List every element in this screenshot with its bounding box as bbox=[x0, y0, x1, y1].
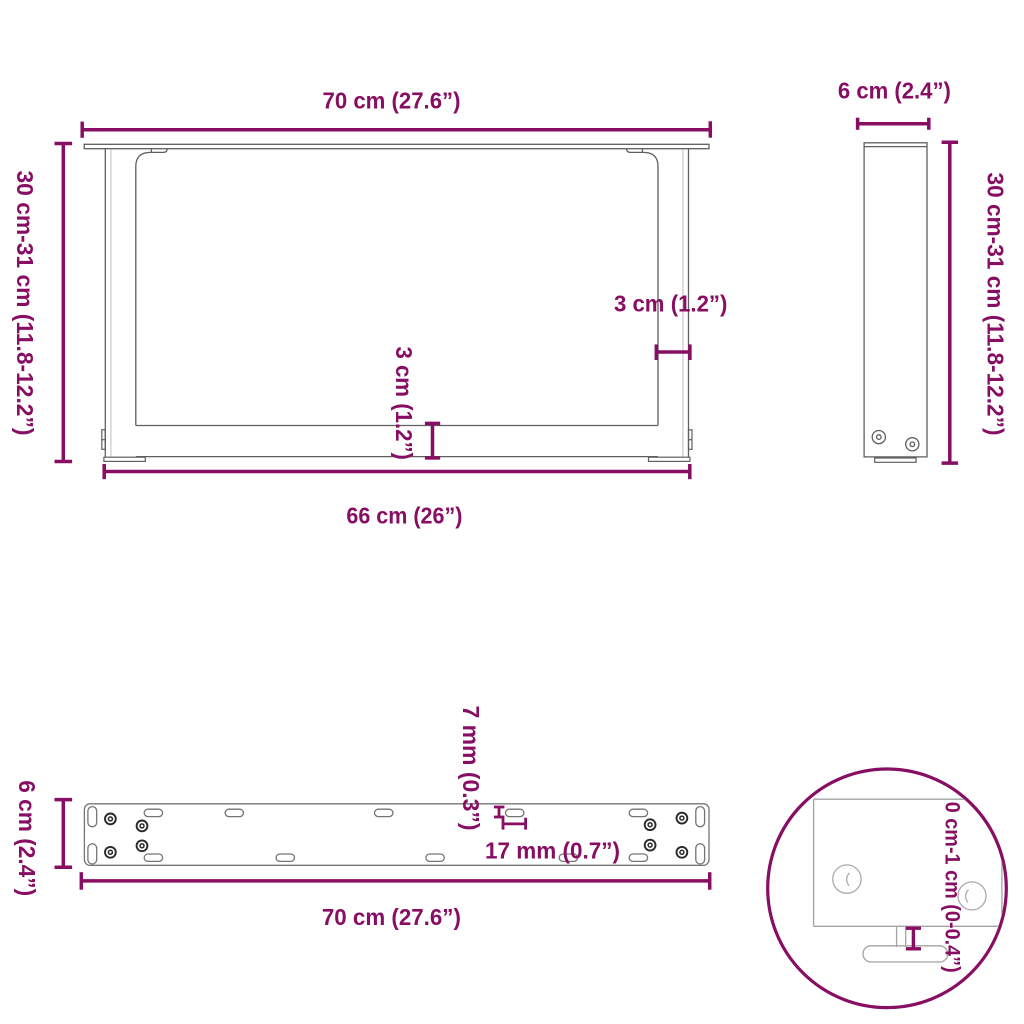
svg-text:3 cm (1.2”): 3 cm (1.2”) bbox=[391, 346, 417, 460]
svg-text:30 cm-31 cm (11.8-12.2”): 30 cm-31 cm (11.8-12.2”) bbox=[12, 171, 38, 436]
svg-text:6 cm (2.4”): 6 cm (2.4”) bbox=[838, 78, 951, 104]
svg-text:30 cm-31 cm (11.8-12.2”): 30 cm-31 cm (11.8-12.2”) bbox=[982, 173, 1008, 436]
svg-text:70 cm (27.6”): 70 cm (27.6”) bbox=[322, 904, 461, 930]
svg-text:6 cm (2.4”): 6 cm (2.4”) bbox=[14, 780, 40, 896]
svg-text:0 cm-1 cm (0-0.4”): 0 cm-1 cm (0-0.4”) bbox=[941, 802, 965, 973]
svg-text:70 cm (27.6”): 70 cm (27.6”) bbox=[323, 87, 461, 113]
svg-text:66 cm (26”): 66 cm (26”) bbox=[346, 503, 462, 529]
svg-text:7 mm (0.3”): 7 mm (0.3”) bbox=[458, 706, 484, 831]
svg-text:17 mm (0.7”): 17 mm (0.7”) bbox=[485, 838, 620, 864]
svg-text:3 cm (1.2”): 3 cm (1.2”) bbox=[614, 291, 728, 317]
